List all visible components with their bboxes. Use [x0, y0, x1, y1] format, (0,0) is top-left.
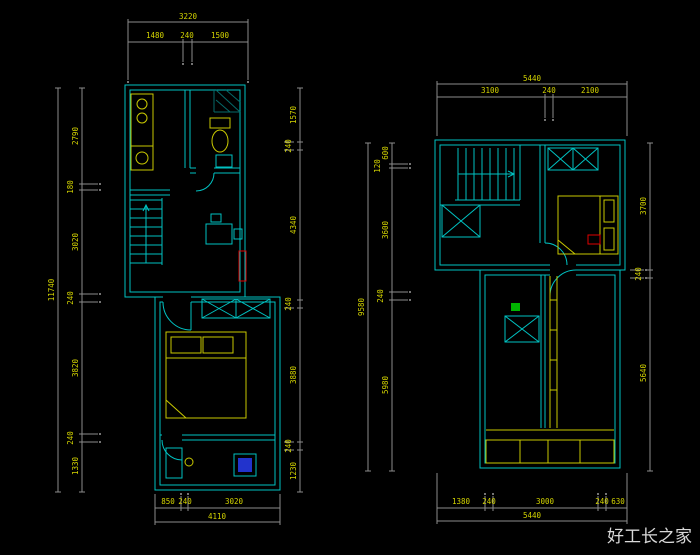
bedroom-door-arc — [163, 302, 191, 330]
dim-label: 240 — [66, 431, 75, 445]
dim-label: 5640 — [639, 363, 648, 382]
stove-burner — [137, 113, 147, 123]
bathroom-door-arc — [196, 173, 214, 191]
stair-hall-wall — [440, 145, 520, 205]
pillow — [604, 228, 614, 250]
dim-label: 240 — [284, 297, 293, 311]
bottom-cabinets — [486, 430, 614, 463]
bed — [558, 196, 618, 254]
dim-label: 240 — [178, 497, 192, 506]
dim-label: 240 — [376, 289, 385, 303]
dim-label: 9580 — [357, 297, 366, 316]
dining-table — [206, 214, 242, 244]
kitchen-counter — [131, 94, 153, 170]
pillow — [604, 200, 614, 222]
staircase — [455, 148, 520, 200]
dim-label: 3820 — [71, 358, 80, 377]
dim-label: 3020 — [71, 232, 80, 251]
desk-and-stool — [166, 448, 193, 478]
dim-label: 3600 — [381, 220, 390, 239]
dim-right: 3700 240 5640 — [630, 143, 653, 471]
staircase — [130, 198, 162, 265]
dim-label: 1330 — [71, 456, 80, 475]
chair — [211, 214, 221, 222]
cad-floorplan-canvas: 3220 1480 240 1500 11740 2790 180 3020 2… — [0, 0, 700, 555]
right-plan-dimensions: 5440 3100 240 2100 9580 600 120 3600 240… — [357, 74, 653, 524]
dim-label: 240 — [284, 439, 293, 453]
dim-label: 240 — [542, 86, 556, 95]
dim-label: 240 — [66, 291, 75, 305]
dim-top: 5440 3100 240 2100 — [437, 74, 627, 136]
bed — [166, 332, 246, 418]
chair — [234, 229, 242, 239]
dim-label: 3880 — [289, 365, 298, 384]
cabinet-band — [550, 276, 557, 428]
door-opening — [163, 295, 191, 304]
stove-burner — [137, 99, 147, 109]
washing-machine — [234, 454, 256, 476]
right-plan — [435, 140, 625, 468]
dim-label: 120 — [373, 159, 382, 173]
pillow — [171, 337, 201, 353]
dim-label: 240 — [284, 139, 293, 153]
dim-label: 1480 — [146, 31, 165, 40]
pillow — [203, 337, 233, 353]
dim-label: 240 — [482, 497, 496, 506]
dim-label: 850 — [161, 497, 175, 506]
dim-top: 3220 1480 240 1500 — [127, 12, 249, 83]
right-plan-walls — [435, 140, 625, 468]
red-marker — [588, 235, 600, 244]
dim-label: 240 — [180, 31, 194, 40]
dim-left: 11740 2790 180 3020 240 3820 240 1330 — [47, 88, 101, 492]
dim-label: 240 — [595, 497, 609, 506]
dim-label: 2100 — [581, 86, 600, 95]
dim-label: 1230 — [289, 461, 298, 480]
kitchen-bath-divider-wall — [185, 90, 190, 168]
dim-label: 3020 — [225, 497, 244, 506]
shaft-hatch — [214, 90, 240, 112]
dim-label: 4340 — [289, 215, 298, 234]
wardrobe-hatch — [442, 205, 480, 237]
kitchen-bottom-wall — [130, 190, 170, 195]
dim-label: 1380 — [452, 497, 471, 506]
toilet — [210, 118, 230, 152]
stool — [185, 458, 193, 466]
dim-label: 630 — [611, 497, 625, 506]
green-marker — [511, 303, 520, 311]
dim-label: 5440 — [523, 74, 542, 83]
lower-divider-wall — [541, 275, 545, 428]
dim-left: 9580 600 120 3600 240 5980 — [357, 143, 411, 471]
watermark-text: 好工长之家 — [607, 527, 692, 547]
left-plan — [125, 85, 280, 490]
dim-label: 600 — [381, 146, 390, 160]
dim-label: 1500 — [211, 31, 230, 40]
dim-label: 5980 — [381, 375, 390, 394]
dim-label: 4110 — [208, 512, 227, 521]
bedroom-divider-wall — [540, 145, 545, 243]
dim-bottom: 850 240 3020 4110 — [155, 493, 280, 525]
dim-label: 1570 — [289, 105, 298, 124]
dim-label: 180 — [66, 180, 75, 194]
kitchen-sink — [131, 146, 153, 170]
dim-label: 5440 — [523, 511, 542, 520]
dim-label: 3700 — [639, 196, 648, 215]
dim-label: 240 — [634, 267, 643, 281]
bathroom-sink — [216, 155, 232, 167]
bathroom-bottom-wall — [190, 168, 240, 173]
dim-label: 3220 — [179, 12, 198, 21]
dim-label: 3000 — [536, 497, 555, 506]
dim-label: 3100 — [481, 86, 500, 95]
floorplan-drawing: 3220 1480 240 1500 11740 2790 180 3020 2… — [0, 0, 700, 555]
dim-label: 2790 — [71, 126, 80, 145]
hatch-box-lower — [505, 316, 539, 342]
dim-label: 11740 — [47, 278, 56, 301]
dim-right: 1570 240 4340 240 3880 240 1230 — [284, 88, 303, 492]
closet-hatch — [548, 148, 598, 170]
dim-bottom: 1380 240 3000 240 630 5440 — [437, 473, 627, 524]
